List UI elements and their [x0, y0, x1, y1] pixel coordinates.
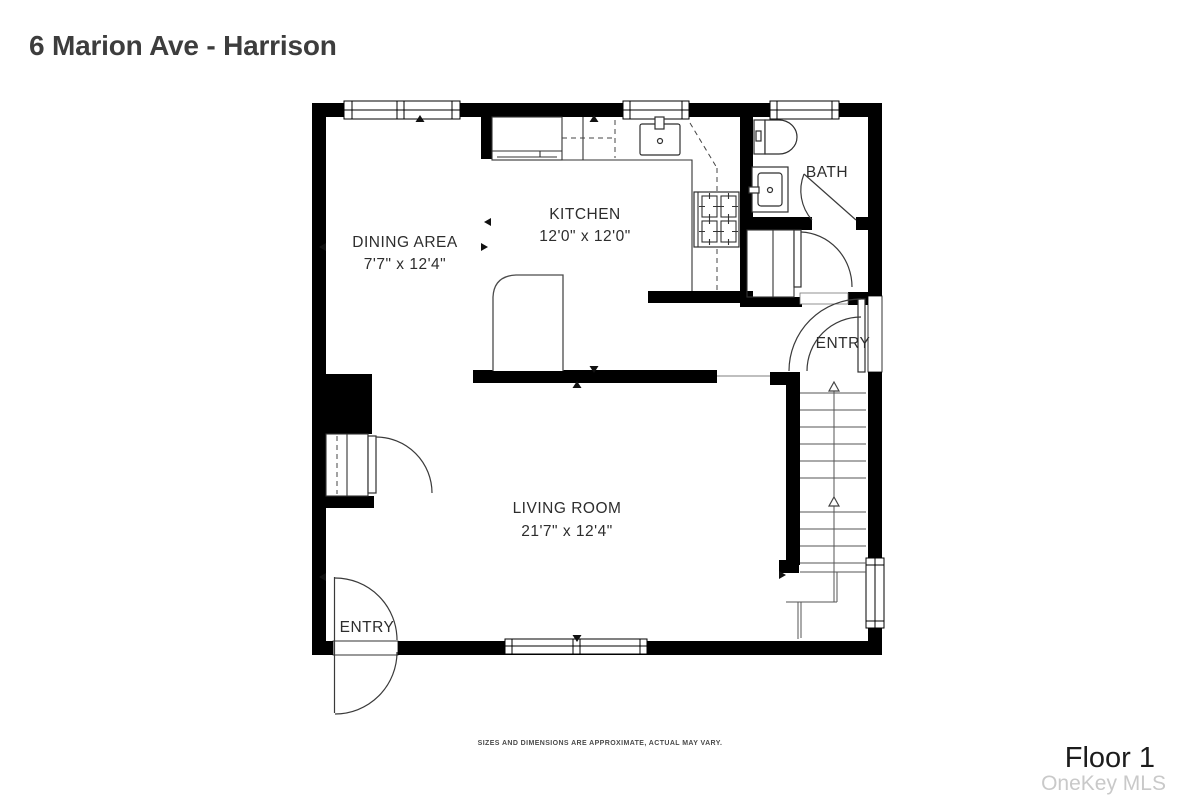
upper-cabinet-dashed — [562, 120, 615, 158]
hall-closet — [747, 230, 852, 297]
range-stove — [694, 192, 739, 247]
closet-door-leaf — [368, 436, 376, 493]
floor-label: Floor 1 — [1065, 742, 1155, 775]
closet-door-leaf — [794, 230, 801, 287]
kitchen-dims: 12'0" x 12'0" — [539, 228, 631, 245]
toilet — [754, 120, 797, 154]
window-stairs — [866, 558, 884, 628]
front-entry-door — [333, 577, 398, 714]
kitchen-sink — [640, 117, 680, 155]
mls-watermark: OneKey MLS — [1041, 772, 1166, 796]
chimney-block — [312, 374, 372, 434]
stair-treads — [800, 393, 866, 563]
living-room-label: LIVING ROOM — [513, 500, 622, 517]
dining-room-dims: 7'7" x 12'4" — [364, 256, 446, 273]
bathroom-vanity — [749, 167, 788, 212]
kitchen-counter — [492, 117, 717, 291]
front-entry-label: ENTRY — [340, 619, 395, 636]
refrigerator — [492, 117, 562, 160]
closet-door-swing — [376, 437, 432, 493]
living-room-dims: 21'7" x 12'4" — [521, 523, 613, 540]
floorplan-page: 6 Marion Ave - Harrison — [0, 0, 1200, 800]
bath-label: BATH — [806, 164, 848, 181]
window-living-double — [505, 639, 647, 654]
closet-door-swing — [801, 232, 852, 287]
hall-threshold — [800, 293, 848, 304]
living-closet — [326, 434, 432, 496]
stair-walk-line — [801, 391, 834, 638]
peninsula-counter — [493, 275, 563, 371]
window-kitchen — [623, 101, 689, 119]
side-entry-label: ENTRY — [816, 335, 871, 352]
stair-landing — [786, 572, 866, 639]
stair-up-arrow — [829, 382, 839, 391]
window-dining-double — [344, 101, 460, 119]
kitchen-label: KITCHEN — [549, 206, 621, 223]
disclaimer-text: SIZES AND DIMENSIONS ARE APPROXIMATE, AC… — [0, 740, 1200, 747]
side-entry-door — [789, 296, 882, 372]
window-bath — [770, 101, 839, 119]
floor-plan-svg: DINING AREA 7'7" x 12'4" KITCHEN 12'0" x… — [0, 0, 1200, 800]
stair-up-arrow — [829, 497, 839, 506]
dining-room-label: DINING AREA — [352, 234, 458, 251]
